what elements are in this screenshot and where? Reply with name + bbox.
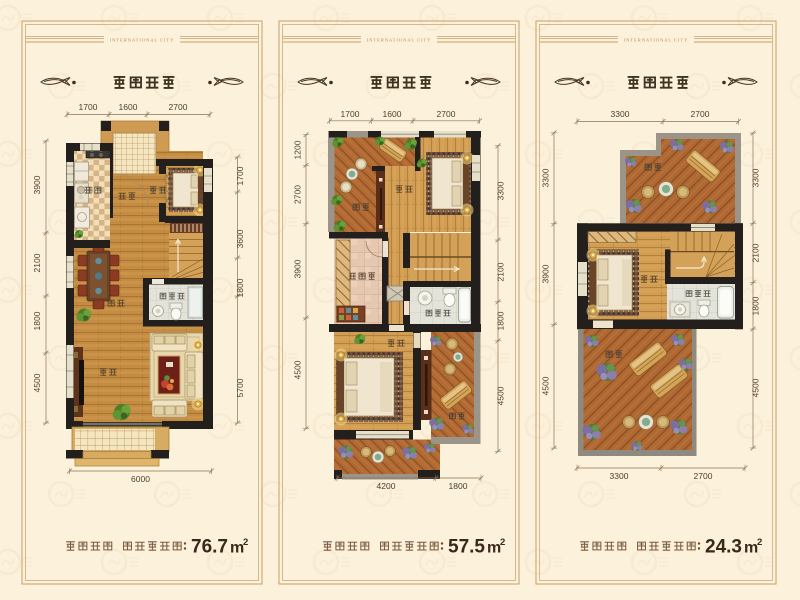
svg-text:1800: 1800: [449, 481, 468, 491]
svg-text:2700: 2700: [691, 109, 710, 119]
svg-text:4500: 4500: [32, 373, 42, 392]
svg-text:1200: 1200: [293, 140, 303, 159]
svg-text:2700: 2700: [293, 185, 303, 204]
svg-text:2700: 2700: [437, 109, 456, 119]
svg-text:3300: 3300: [541, 168, 551, 187]
svg-text:57.5: 57.5: [448, 537, 485, 558]
svg-text:2100: 2100: [32, 253, 42, 272]
svg-text:INTERNATIONAL CITY: INTERNATIONAL CITY: [367, 38, 432, 43]
svg-text:3300: 3300: [610, 471, 629, 481]
svg-text:1800: 1800: [32, 311, 42, 330]
svg-text:2700: 2700: [694, 471, 713, 481]
svg-text:4500: 4500: [496, 386, 506, 405]
svg-text:4500: 4500: [751, 378, 761, 397]
svg-text:3900: 3900: [293, 259, 303, 278]
svg-text:6000: 6000: [131, 474, 150, 484]
svg-text:3900: 3900: [541, 264, 551, 283]
svg-text:1700: 1700: [341, 109, 360, 119]
svg-text:1600: 1600: [119, 102, 138, 112]
svg-text:3300: 3300: [611, 109, 630, 119]
svg-text:76.7: 76.7: [191, 537, 228, 558]
svg-text:1800: 1800: [235, 278, 245, 297]
svg-text:1700: 1700: [79, 102, 98, 112]
svg-text:2100: 2100: [751, 243, 761, 262]
svg-text:1800: 1800: [751, 296, 761, 315]
svg-text:INTERNATIONAL CITY: INTERNATIONAL CITY: [624, 38, 689, 43]
svg-text:3900: 3900: [32, 175, 42, 194]
svg-text:2700: 2700: [169, 102, 188, 112]
svg-text:3300: 3300: [751, 168, 761, 187]
svg-text:5700: 5700: [235, 378, 245, 397]
svg-text:2: 2: [500, 537, 505, 548]
svg-text:1600: 1600: [383, 109, 402, 119]
svg-text:2: 2: [757, 537, 762, 548]
svg-text:1800: 1800: [496, 311, 506, 330]
svg-text:4500: 4500: [293, 360, 303, 379]
svg-text:24.3: 24.3: [705, 537, 742, 558]
svg-text:1700: 1700: [235, 166, 245, 185]
svg-text:3600: 3600: [235, 229, 245, 248]
svg-text:2100: 2100: [496, 262, 506, 281]
svg-text:2: 2: [243, 537, 248, 548]
svg-text:3300: 3300: [496, 181, 506, 200]
svg-text:4200: 4200: [377, 481, 396, 491]
svg-text:4500: 4500: [541, 376, 551, 395]
svg-text:INTERNATIONAL CITY: INTERNATIONAL CITY: [110, 38, 175, 43]
